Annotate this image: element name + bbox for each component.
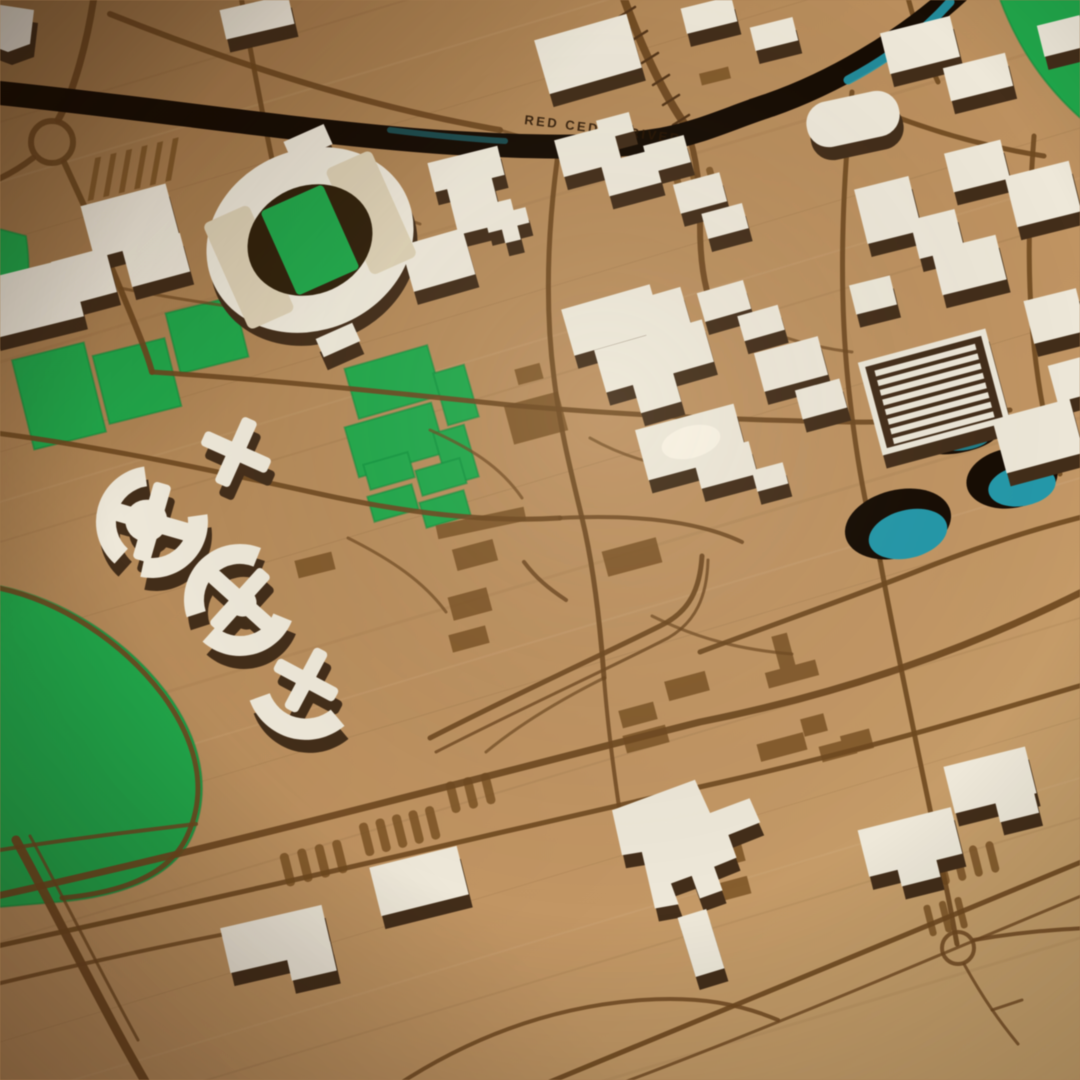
photo-shadow-bottom-left xyxy=(0,0,1080,1080)
photo-of-wooden-3d-map: RED CEDAR RIVER xyxy=(0,0,1080,1080)
map-scene: RED CEDAR RIVER xyxy=(0,0,1080,1080)
